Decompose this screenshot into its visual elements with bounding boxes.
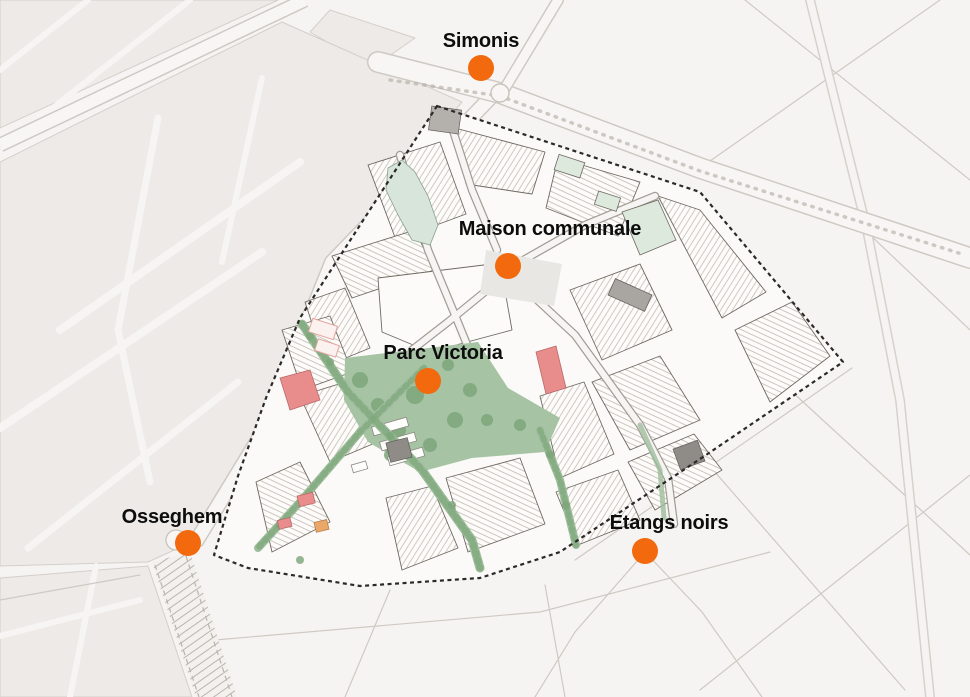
station-dot	[175, 530, 201, 556]
station-label: Maison communale	[459, 219, 641, 239]
simonis-roundabout	[491, 84, 509, 102]
station-dot	[415, 368, 441, 394]
station-dot	[468, 55, 494, 81]
station-label: Simonis	[443, 31, 519, 51]
station-dot	[632, 538, 658, 564]
station-label: Osseghem	[122, 507, 223, 527]
station-label: Etangs noirs	[610, 513, 729, 533]
station-dot	[495, 253, 521, 279]
masterplan-map: Simonis Maison communale Parc Victoria O…	[0, 0, 970, 697]
station-label: Parc Victoria	[383, 343, 502, 363]
